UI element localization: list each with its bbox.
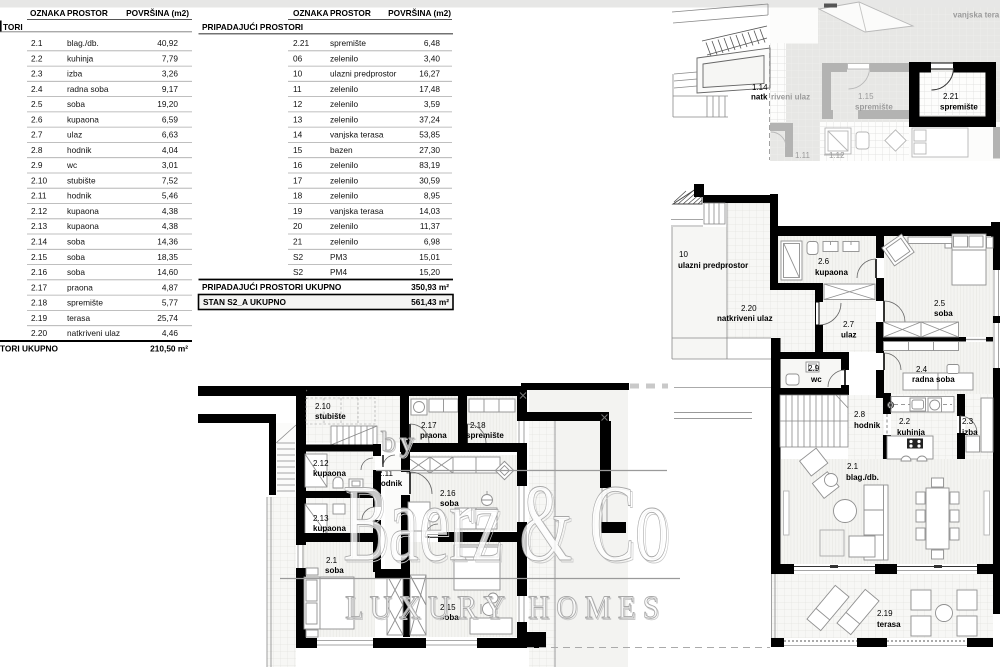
svg-text:19,20: 19,20 <box>157 99 178 109</box>
svg-text:27,30: 27,30 <box>419 145 440 155</box>
svg-text:wc: wc <box>810 375 822 384</box>
svg-text:2.5: 2.5 <box>31 99 43 109</box>
svg-text:zelenilo: zelenilo <box>330 221 359 231</box>
svg-text:2.12: 2.12 <box>31 206 48 216</box>
svg-text:4,38: 4,38 <box>162 221 179 231</box>
svg-text:2.14: 2.14 <box>31 237 48 247</box>
svg-text:spremište: spremište <box>67 298 103 308</box>
svg-text:blag./db.: blag./db. <box>846 473 879 482</box>
svg-text:40,92: 40,92 <box>157 38 178 48</box>
svg-text:2.19: 2.19 <box>31 313 48 323</box>
svg-text:1.15: 1.15 <box>858 92 874 101</box>
svg-text:PRIPADAJUĆI PROSTORI: PRIPADAJUĆI PROSTORI <box>202 21 303 32</box>
svg-text:30,59: 30,59 <box>419 175 440 185</box>
svg-text:5,77: 5,77 <box>162 298 179 308</box>
svg-text:blag./db.: blag./db. <box>67 38 99 48</box>
svg-text:15,01: 15,01 <box>419 252 440 262</box>
svg-text:kupaona: kupaona <box>815 268 848 277</box>
svg-text:17,48: 17,48 <box>419 84 440 94</box>
svg-text:kuhinja: kuhinja <box>67 53 94 63</box>
svg-text:izba: izba <box>67 69 83 79</box>
svg-text:4,38: 4,38 <box>162 206 179 216</box>
svg-text:spremište: spremište <box>940 103 978 112</box>
svg-text:2.7: 2.7 <box>31 130 43 140</box>
svg-text:3,26: 3,26 <box>162 69 179 79</box>
svg-text:3,40: 3,40 <box>424 53 441 63</box>
svg-text:10: 10 <box>679 250 688 259</box>
svg-text:06: 06 <box>293 53 303 63</box>
svg-text:14,60: 14,60 <box>157 267 178 277</box>
svg-text:16: 16 <box>293 160 303 170</box>
svg-text:ulaz: ulaz <box>67 130 82 140</box>
svg-text:210,50 m²: 210,50 m² <box>150 344 188 354</box>
svg-text:stubište: stubište <box>67 175 96 185</box>
svg-text:2.17: 2.17 <box>31 282 48 292</box>
svg-text:3,59: 3,59 <box>424 99 441 109</box>
svg-text:561,43 m²: 561,43 m² <box>411 297 449 307</box>
svg-text:2.6: 2.6 <box>31 114 43 124</box>
svg-text:19: 19 <box>293 206 303 216</box>
svg-text:1.12: 1.12 <box>829 151 845 160</box>
svg-text:20: 20 <box>293 221 303 231</box>
svg-text:vanjska terasa: vanjska terasa <box>330 206 384 216</box>
svg-text:16,27: 16,27 <box>419 69 440 79</box>
svg-text:21: 21 <box>293 237 303 247</box>
svg-text:7,52: 7,52 <box>162 175 179 185</box>
svg-text:hodnik: hodnik <box>67 191 92 201</box>
svg-text:37,24: 37,24 <box>419 114 440 124</box>
svg-text:11: 11 <box>293 84 302 94</box>
svg-text:stubište: stubište <box>315 412 346 421</box>
svg-text:2.1: 2.1 <box>326 556 338 565</box>
svg-text:soba: soba <box>67 99 85 109</box>
svg-text:4,87: 4,87 <box>162 282 179 292</box>
svg-text:zelenilo: zelenilo <box>330 84 359 94</box>
svg-text:vanjska tera: vanjska tera <box>953 11 1000 20</box>
svg-text:natkriveni ulaz: natkriveni ulaz <box>717 314 773 323</box>
svg-text:ulazni predprostor: ulazni predprostor <box>330 69 397 79</box>
svg-text:PM4: PM4 <box>330 267 347 277</box>
svg-text:1.14: 1.14 <box>752 83 768 92</box>
svg-text:6,59: 6,59 <box>162 114 179 124</box>
svg-text:350,93 m²: 350,93 m² <box>411 282 449 292</box>
svg-text:2.13: 2.13 <box>313 514 329 523</box>
svg-text:zelenilo: zelenilo <box>330 160 359 170</box>
svg-text:2.7: 2.7 <box>843 320 855 329</box>
svg-text:zelenilo: zelenilo <box>330 53 359 63</box>
svg-text:PRIPADAJUĆI PROSTORI UKUPNO: PRIPADAJUĆI PROSTORI UKUPNO <box>202 281 342 292</box>
svg-text:kupaona: kupaona <box>313 469 346 478</box>
svg-text:8,95: 8,95 <box>424 191 441 201</box>
svg-text:14,36: 14,36 <box>157 237 178 247</box>
svg-text:6,98: 6,98 <box>424 237 441 247</box>
svg-text:2.20: 2.20 <box>31 328 48 338</box>
svg-text:2.9: 2.9 <box>808 364 820 373</box>
svg-text:zelenilo: zelenilo <box>330 114 359 124</box>
svg-text:2.2: 2.2 <box>31 53 43 63</box>
svg-text:kupaona: kupaona <box>313 524 346 533</box>
svg-text:OZNAKA: OZNAKA <box>30 8 66 18</box>
svg-text:radna soba: radna soba <box>912 375 955 384</box>
svg-text:6,63: 6,63 <box>162 130 179 140</box>
svg-text:2.9: 2.9 <box>31 160 43 170</box>
svg-text:TORI UKUPNO: TORI UKUPNO <box>0 344 58 354</box>
svg-text:4,46: 4,46 <box>162 328 179 338</box>
svg-text:18: 18 <box>293 191 303 201</box>
svg-text:spremište: spremište <box>855 103 893 112</box>
svg-text:kupaona: kupaona <box>67 206 99 216</box>
svg-text:soba: soba <box>325 566 344 575</box>
svg-text:11,37: 11,37 <box>420 221 441 231</box>
svg-text:2.10: 2.10 <box>31 175 48 185</box>
svg-text:hodnik: hodnik <box>854 421 881 430</box>
svg-text:14: 14 <box>293 130 303 140</box>
svg-text:PROSTOR: PROSTOR <box>67 8 108 18</box>
svg-text:natk: natk <box>751 93 768 102</box>
svg-text:2.17: 2.17 <box>421 421 437 430</box>
svg-text:2.10: 2.10 <box>315 402 331 411</box>
svg-text:2.1: 2.1 <box>31 38 43 48</box>
svg-text:soba: soba <box>67 237 85 247</box>
svg-text:13: 13 <box>293 114 303 124</box>
svg-text:STAN S2_A UKUPNO: STAN S2_A UKUPNO <box>203 297 287 307</box>
svg-text:H O M E S: H O M E S <box>528 590 659 626</box>
svg-text:53,85: 53,85 <box>419 130 440 140</box>
svg-text:2.19: 2.19 <box>877 609 893 618</box>
svg-text:25,74: 25,74 <box>157 313 178 323</box>
svg-text:9,17: 9,17 <box>162 84 179 94</box>
svg-text:praona: praona <box>67 282 93 292</box>
svg-text:2.20: 2.20 <box>741 304 757 313</box>
svg-text:2.16: 2.16 <box>31 267 48 277</box>
svg-text:15: 15 <box>293 145 303 155</box>
svg-text:2.15: 2.15 <box>31 252 48 262</box>
svg-text:3,01: 3,01 <box>162 160 179 170</box>
svg-text:S2: S2 <box>293 267 304 277</box>
svg-text:ulazni predprostor: ulazni predprostor <box>678 261 748 270</box>
svg-text:4,04: 4,04 <box>162 145 179 155</box>
svg-text:TORI: TORI <box>3 22 23 32</box>
svg-text:5,46: 5,46 <box>162 191 179 201</box>
svg-text:1.11: 1.11 <box>795 151 811 160</box>
svg-text:S2: S2 <box>293 252 304 262</box>
svg-text:14,03: 14,03 <box>419 206 440 216</box>
svg-text:kupaona: kupaona <box>67 221 99 231</box>
svg-text:2.4: 2.4 <box>31 84 43 94</box>
svg-text:2.2: 2.2 <box>899 417 911 426</box>
svg-text:wc: wc <box>66 160 77 170</box>
svg-text:terasa: terasa <box>67 313 90 323</box>
svg-text:18,35: 18,35 <box>157 252 178 262</box>
svg-text:natkriveni ulaz: natkriveni ulaz <box>67 328 120 338</box>
svg-text:soba: soba <box>67 267 85 277</box>
svg-text:vanjska terasa: vanjska terasa <box>330 130 384 140</box>
svg-text:2.13: 2.13 <box>31 221 48 231</box>
svg-text:12: 12 <box>293 99 303 109</box>
svg-text:10: 10 <box>293 69 303 79</box>
svg-text:zelenilo: zelenilo <box>330 175 359 185</box>
svg-text:terasa: terasa <box>877 620 901 629</box>
svg-text:ulaz: ulaz <box>841 331 857 340</box>
svg-text:hodnik: hodnik <box>67 145 92 155</box>
svg-text:spremište: spremište <box>330 38 366 48</box>
svg-text:soba: soba <box>934 309 953 318</box>
svg-text:PM3: PM3 <box>330 252 347 262</box>
svg-text:2.3: 2.3 <box>962 417 974 426</box>
svg-text:7,79: 7,79 <box>162 53 179 63</box>
svg-text:praona: praona <box>420 431 447 440</box>
svg-text:6,48: 6,48 <box>424 38 441 48</box>
svg-text:OZNAKA: OZNAKA <box>293 8 329 18</box>
svg-text:2.18: 2.18 <box>31 298 48 308</box>
svg-text:83,19: 83,19 <box>419 160 440 170</box>
svg-text:L U X U R Y: L U X U R Y <box>345 590 505 626</box>
svg-text:soba: soba <box>67 252 85 262</box>
svg-text:radna soba: radna soba <box>67 84 109 94</box>
svg-text:2.5: 2.5 <box>934 299 946 308</box>
svg-text:kupaona: kupaona <box>67 114 99 124</box>
svg-text:bazen: bazen <box>330 145 353 155</box>
svg-text:2.3: 2.3 <box>31 69 43 79</box>
svg-text:2.11: 2.11 <box>31 191 47 201</box>
svg-text:zelenilo: zelenilo <box>330 99 359 109</box>
svg-text:2.21: 2.21 <box>943 92 959 101</box>
svg-text:2.8: 2.8 <box>854 410 866 419</box>
svg-text:2.18: 2.18 <box>470 421 486 430</box>
svg-text:2.12: 2.12 <box>313 459 329 468</box>
svg-text:2.4: 2.4 <box>916 365 928 374</box>
svg-text:17: 17 <box>293 175 303 185</box>
svg-text:riveni ulaz: riveni ulaz <box>771 93 810 102</box>
svg-text:2.1: 2.1 <box>847 462 859 471</box>
svg-text:15,20: 15,20 <box>419 267 440 277</box>
svg-text:2.8: 2.8 <box>31 145 43 155</box>
svg-text:POVRŠINA (m2): POVRŠINA (m2) <box>126 7 189 18</box>
svg-text:zelenilo: zelenilo <box>330 237 359 247</box>
svg-text:zelenilo: zelenilo <box>330 191 359 201</box>
svg-text:Baerz & Co: Baerz & Co <box>343 462 669 584</box>
svg-text:2.6: 2.6 <box>818 257 830 266</box>
svg-text:2.21: 2.21 <box>293 38 310 48</box>
svg-text:POVRŠINA (m2): POVRŠINA (m2) <box>388 7 451 18</box>
svg-text:PROSTOR: PROSTOR <box>330 8 371 18</box>
